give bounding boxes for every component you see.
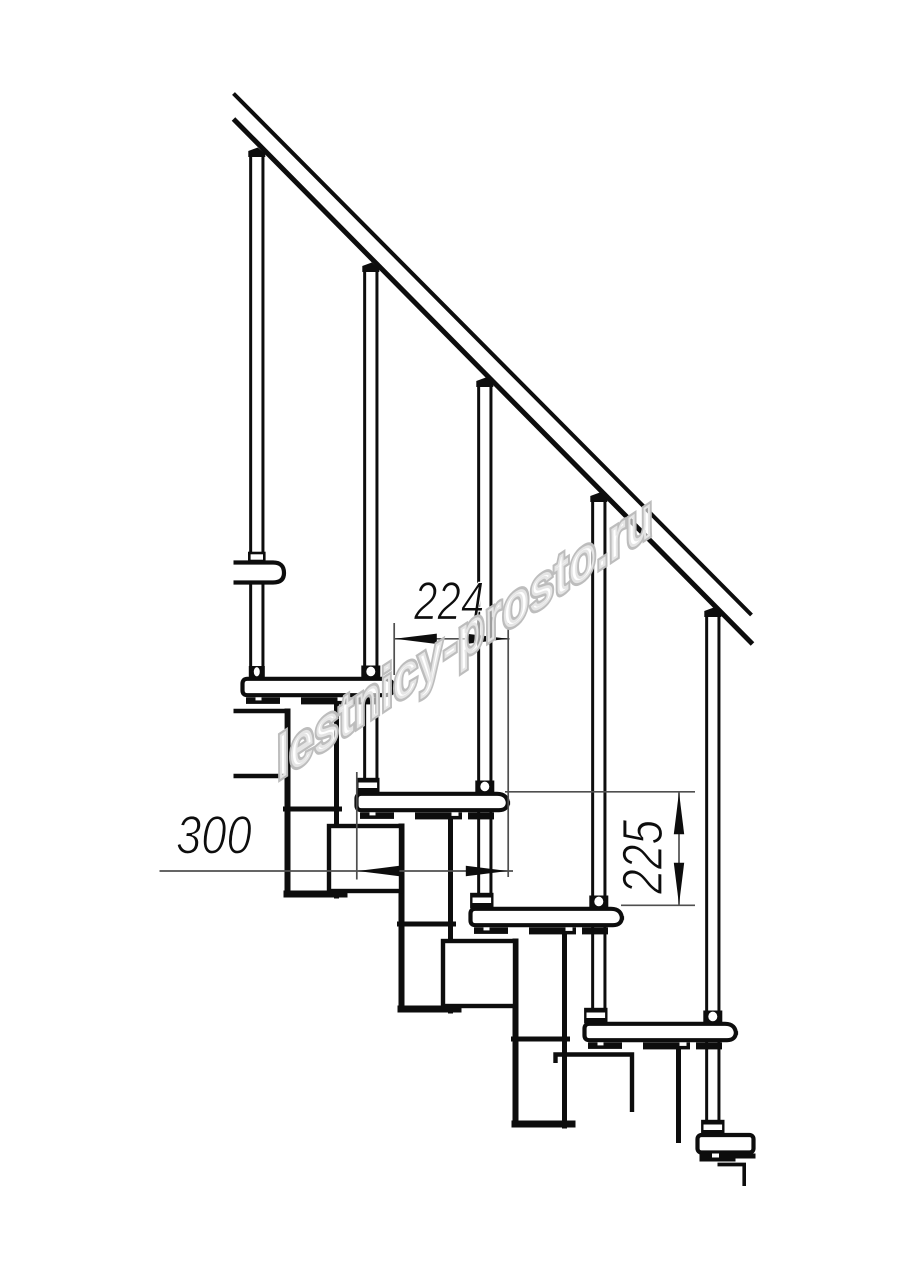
svg-text:300: 300 xyxy=(176,806,252,866)
svg-text:225: 225 xyxy=(611,820,675,895)
